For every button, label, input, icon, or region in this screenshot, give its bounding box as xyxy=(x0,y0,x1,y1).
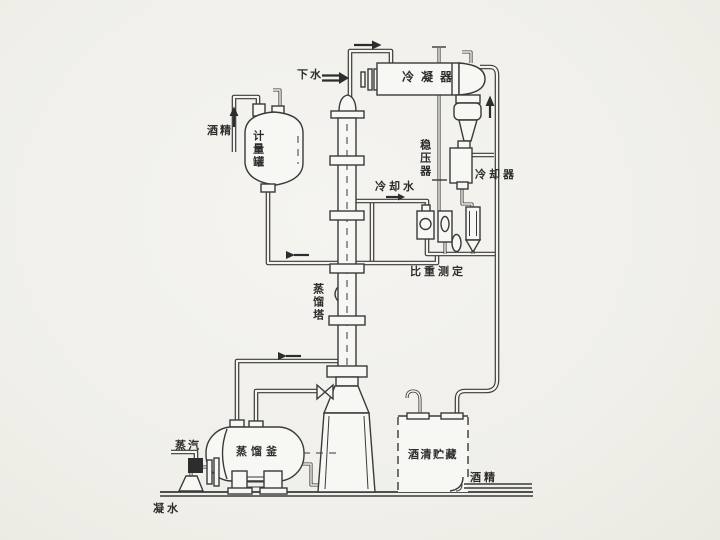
label-alcohol-in: 酒精 xyxy=(207,125,233,138)
label-cooling-water: 冷却水 xyxy=(375,181,417,194)
label-stabilizer: 稳压器 xyxy=(418,139,431,178)
label-tower: 蒸馏塔 xyxy=(311,283,324,322)
distillation-tower-column xyxy=(317,95,375,492)
label-measuring-tank: 计量罐 xyxy=(251,130,264,169)
cooler-box xyxy=(450,141,472,189)
steam-valve xyxy=(188,458,203,473)
label-kettle: 蒸馏釜 xyxy=(236,446,281,459)
label-gravity-test: 比重测定 xyxy=(410,266,466,279)
diagram-canvas: 下水 冷凝器 酒精 计量罐 稳压器 冷却水 冷却器 比重测定 蒸馏塔 蒸馏釜 蒸… xyxy=(0,0,720,540)
label-condenser: 冷凝器 xyxy=(402,71,459,85)
label-condensate: 凝水 xyxy=(153,503,181,516)
label-steam: 蒸汽 xyxy=(175,440,201,453)
label-down-water: 下水 xyxy=(297,69,323,82)
label-storage: 酒清贮藏 xyxy=(408,449,458,462)
label-alcohol-out: 酒精 xyxy=(470,472,498,485)
label-cooler: 冷却器 xyxy=(475,169,517,182)
process-diagram xyxy=(0,0,720,540)
condensate-funnel xyxy=(179,476,203,491)
